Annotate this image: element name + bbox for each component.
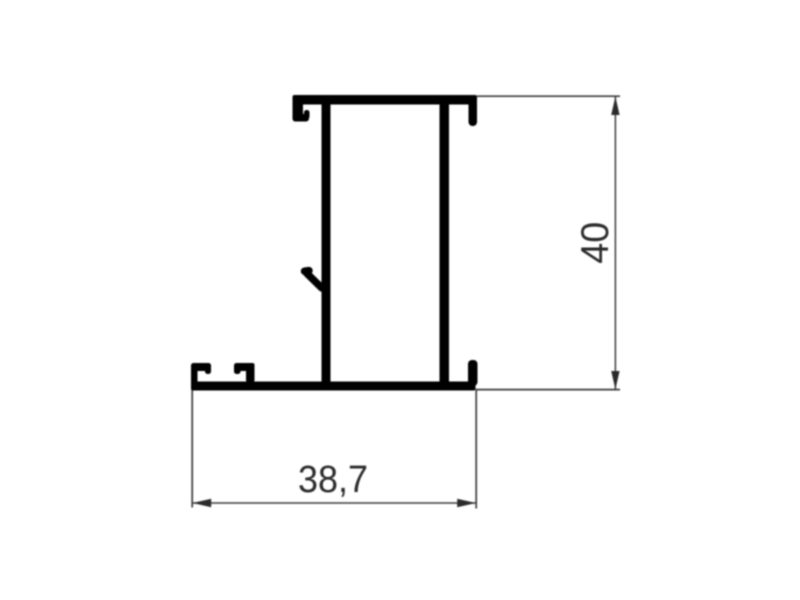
- svg-text:38,7: 38,7: [298, 459, 368, 501]
- svg-text:40: 40: [574, 222, 617, 264]
